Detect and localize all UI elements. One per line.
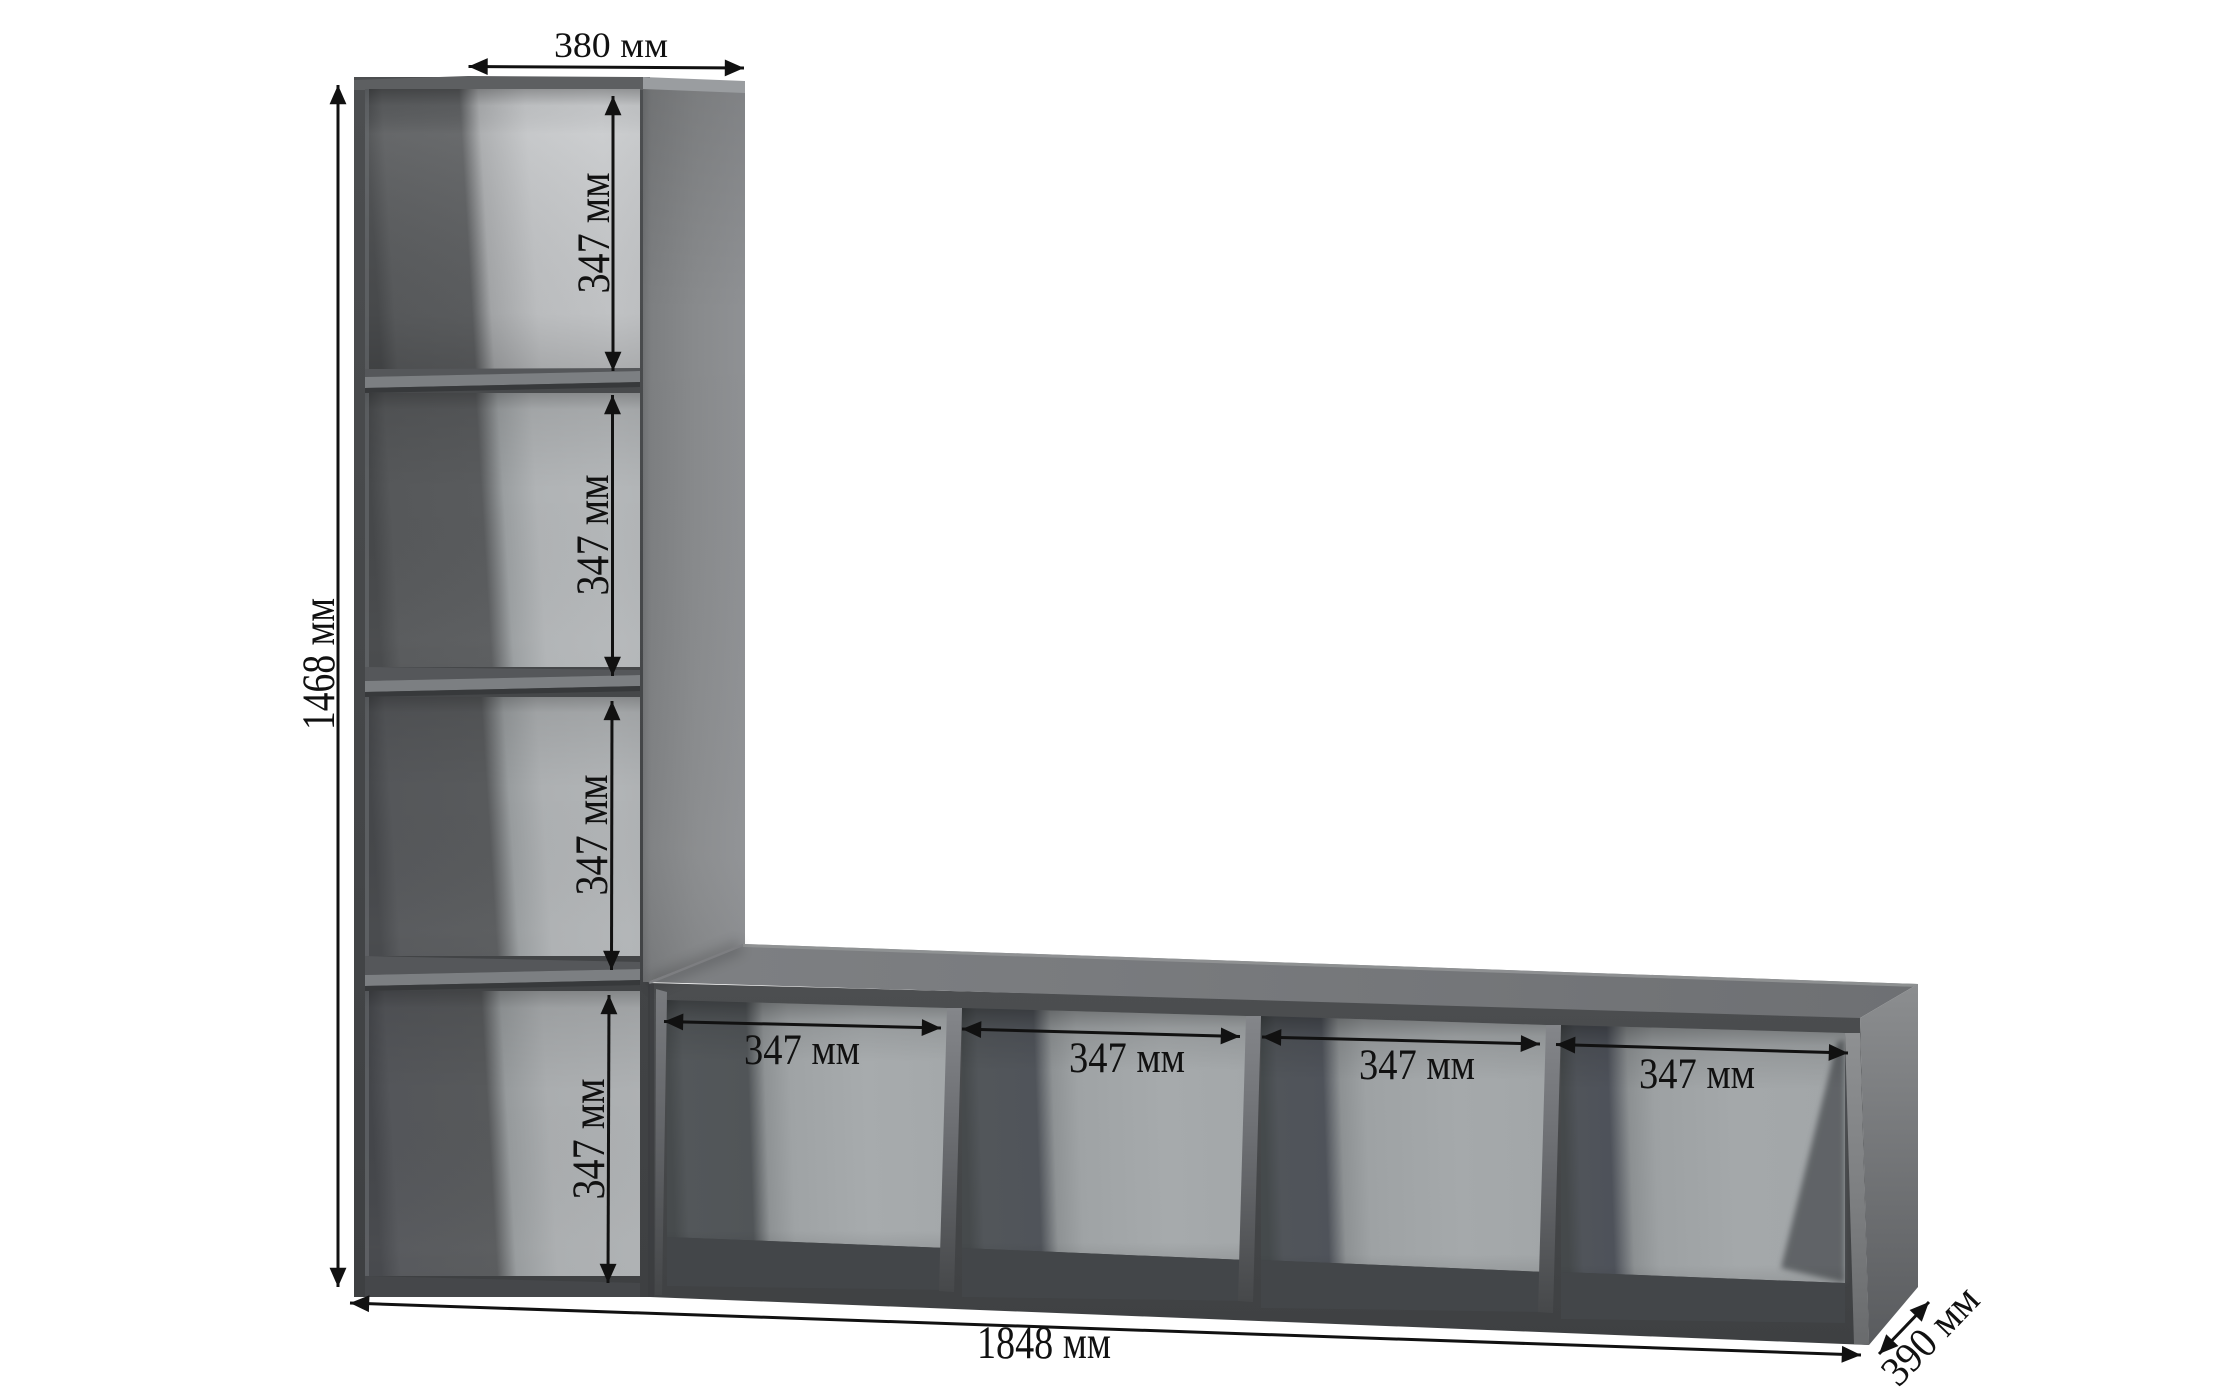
svg-text:347 мм: 347 мм bbox=[1069, 1035, 1185, 1082]
svg-text:347 мм: 347 мм bbox=[563, 1079, 615, 1200]
svg-text:1468 мм: 1468 мм bbox=[293, 598, 345, 730]
svg-text:347 мм: 347 мм bbox=[744, 1027, 860, 1074]
svg-text:347 мм: 347 мм bbox=[1359, 1042, 1475, 1089]
svg-text:347 мм: 347 мм bbox=[566, 775, 618, 896]
svg-text:347 мм: 347 мм bbox=[567, 475, 619, 596]
svg-text:347 мм: 347 мм bbox=[1639, 1051, 1755, 1098]
svg-text:380 мм: 380 мм bbox=[554, 25, 668, 65]
svg-text:1848 мм: 1848 мм bbox=[977, 1317, 1111, 1369]
svg-text:347 мм: 347 мм bbox=[568, 173, 620, 294]
